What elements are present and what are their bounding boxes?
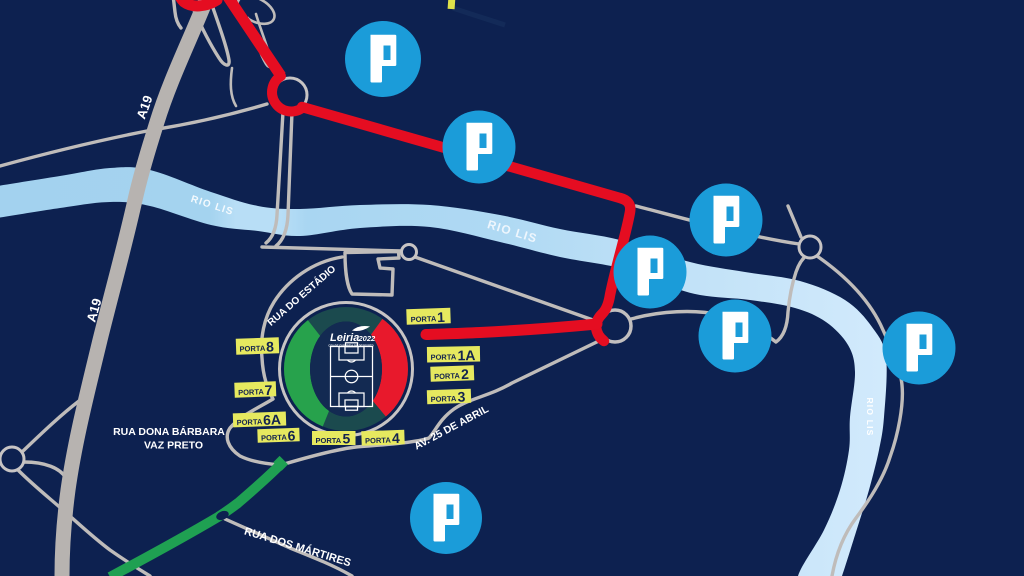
- svg-text:CIDADE EUROPEIA DO DESPORTO: CIDADE EUROPEIA DO DESPORTO: [328, 344, 373, 348]
- svg-text:PORTA: PORTA: [239, 344, 266, 354]
- svg-text:8: 8: [266, 338, 275, 354]
- svg-text:PORTA: PORTA: [430, 394, 457, 404]
- svg-text:7: 7: [264, 382, 273, 398]
- svg-text:PORTA: PORTA: [365, 436, 392, 446]
- svg-text:2: 2: [461, 366, 470, 382]
- svg-text:RUA DONA BÁRBARA: RUA DONA BÁRBARA: [113, 425, 225, 438]
- svg-text:PORTA: PORTA: [316, 436, 342, 445]
- svg-text:PORTA: PORTA: [434, 371, 461, 381]
- svg-text:6: 6: [287, 427, 296, 443]
- svg-text:PORTA: PORTA: [261, 433, 288, 443]
- svg-text:RIO LIS: RIO LIS: [865, 397, 875, 436]
- svg-text:PORTA: PORTA: [430, 352, 456, 361]
- svg-text:PORTA: PORTA: [236, 417, 263, 427]
- svg-text:3: 3: [457, 388, 466, 404]
- svg-text:5: 5: [343, 431, 351, 447]
- svg-text:Leiria: Leiria: [330, 332, 359, 344]
- svg-text:PORTA: PORTA: [238, 387, 265, 397]
- svg-text:1A: 1A: [457, 347, 475, 363]
- svg-text:2022: 2022: [358, 334, 377, 343]
- svg-text:6A: 6A: [263, 411, 281, 428]
- svg-text:4: 4: [392, 430, 401, 446]
- svg-text:VAZ PRETO: VAZ PRETO: [144, 440, 203, 452]
- svg-text:1: 1: [437, 309, 446, 325]
- svg-text:PORTA: PORTA: [410, 314, 437, 324]
